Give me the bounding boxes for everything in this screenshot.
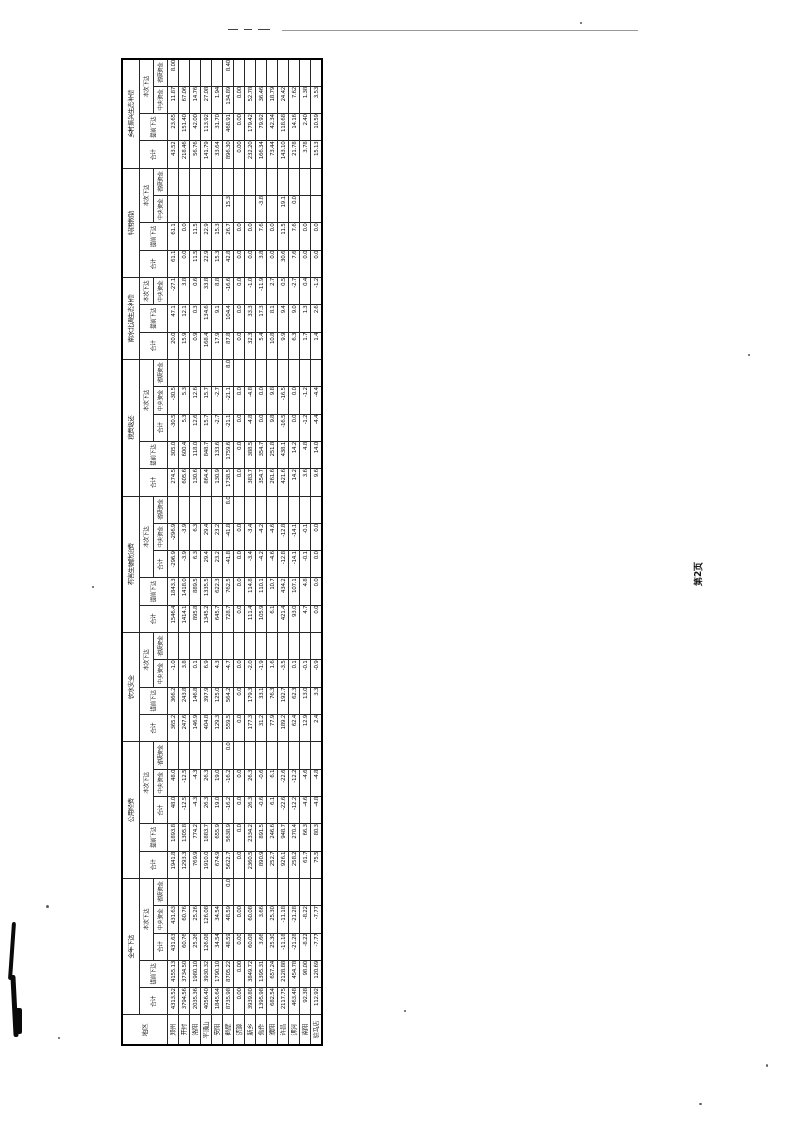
value-cell bbox=[267, 496, 278, 523]
page-number-label: 第2页 bbox=[692, 544, 706, 586]
sub-header: 中央资金 bbox=[154, 278, 168, 305]
value-cell: 151.40 bbox=[179, 114, 190, 141]
value-cell: 27.08 bbox=[201, 86, 212, 113]
sub-header: 本次下达 bbox=[140, 278, 154, 305]
value-cell bbox=[289, 742, 300, 769]
scan-speck bbox=[92, 586, 94, 588]
region-name: 郑州 bbox=[168, 1015, 179, 1045]
fiscal-allocation-table: 地区全年下达公用经费饮水安全有害生物防治费税费返还南水北调生态补偿特困救助乡村振… bbox=[121, 58, 323, 1046]
value-cell: -16.2 bbox=[223, 797, 234, 824]
value-cell: 66.3 bbox=[300, 824, 311, 851]
group-header: 饮水安全 bbox=[122, 633, 140, 742]
value-cell: -41.8 bbox=[223, 551, 234, 578]
value-cell bbox=[190, 633, 201, 660]
value-cell: 166.34 bbox=[256, 141, 267, 168]
value-cell: 3.66 bbox=[256, 933, 267, 960]
value-cell: 17.3 bbox=[256, 305, 267, 332]
value-cell: 3.6 bbox=[300, 469, 311, 496]
value-cell: 246.6 bbox=[267, 824, 278, 851]
value-cell: 9.4 bbox=[278, 305, 289, 332]
region-name: 驻马店 bbox=[311, 1015, 323, 1045]
value-cell: 0.0 bbox=[300, 223, 311, 250]
value-cell: 3.78 bbox=[300, 141, 311, 168]
scanned-page: { "page": { "label": "第2页" }, "table": {… bbox=[0, 0, 794, 1127]
value-cell: -22.6 bbox=[278, 769, 289, 796]
value-cell: 657.24 bbox=[267, 960, 278, 987]
value-cell: 1305.8 bbox=[179, 824, 190, 851]
value-cell: 47.1 bbox=[168, 305, 179, 332]
sub-header: 中央资金 bbox=[154, 387, 168, 414]
value-cell bbox=[179, 360, 190, 387]
value-cell: -1.2 bbox=[300, 414, 311, 441]
value-cell bbox=[256, 878, 267, 905]
value-cell: 79.92 bbox=[256, 114, 267, 141]
table-row: 驻马店112.92120.69-7.77-7.7775.580.3-4.8-4.… bbox=[311, 59, 323, 1045]
value-cell: 0.0 bbox=[234, 223, 245, 250]
value-cell: -296.9 bbox=[168, 551, 179, 578]
value-cell: -22.6 bbox=[278, 797, 289, 824]
value-cell: 243.8 bbox=[179, 687, 190, 714]
value-cell: 622.3 bbox=[212, 578, 223, 605]
value-cell: 134.6 bbox=[201, 305, 212, 332]
value-cell: 0.0 bbox=[234, 387, 245, 414]
value-cell: 559.5 bbox=[223, 715, 234, 742]
value-cell: 26.3 bbox=[245, 769, 256, 796]
value-cell: 10.8 bbox=[267, 332, 278, 359]
value-cell: 3.53 bbox=[311, 86, 323, 113]
value-cell bbox=[256, 360, 267, 387]
value-cell: -2.7 bbox=[212, 387, 223, 414]
value-cell bbox=[278, 742, 289, 769]
value-cell: 274.5 bbox=[168, 469, 179, 496]
value-cell: 26.3 bbox=[245, 797, 256, 824]
value-cell: 8705.22 bbox=[223, 960, 234, 987]
value-cell: 93.0 bbox=[289, 605, 300, 632]
value-cell bbox=[234, 633, 245, 660]
value-cell: 3.3 bbox=[311, 687, 323, 714]
value-cell: 366.2 bbox=[168, 687, 179, 714]
value-cell: -12.8 bbox=[278, 523, 289, 550]
value-cell bbox=[234, 360, 245, 387]
value-cell: 431.63 bbox=[168, 933, 179, 960]
value-cell: 19.0 bbox=[212, 769, 223, 796]
region-name: 焦作 bbox=[256, 1015, 267, 1045]
sub-header: 中央资金 bbox=[154, 86, 168, 113]
value-cell: 404.8 bbox=[201, 715, 212, 742]
value-cell: 3.8 bbox=[179, 660, 190, 687]
value-cell: -3.9 bbox=[179, 523, 190, 550]
value-cell: 1395.31 bbox=[256, 960, 267, 987]
value-cell: 0.3 bbox=[190, 305, 201, 332]
value-cell: 383.7 bbox=[245, 469, 256, 496]
value-cell bbox=[168, 196, 179, 223]
value-cell: 6.1 bbox=[267, 797, 278, 824]
group-header: 公用经费 bbox=[122, 742, 140, 879]
value-cell bbox=[245, 360, 256, 387]
value-cell: 0.0 bbox=[311, 523, 323, 550]
value-cell: 0.6 bbox=[190, 278, 201, 305]
value-cell: 25.30 bbox=[267, 906, 278, 933]
value-cell: 0.0 bbox=[179, 250, 190, 277]
sub-header: 合计 bbox=[154, 933, 168, 960]
value-cell: 9.6 bbox=[311, 469, 323, 496]
value-cell bbox=[245, 878, 256, 905]
value-cell bbox=[278, 633, 289, 660]
scan-speck bbox=[748, 354, 750, 356]
value-cell bbox=[179, 633, 190, 660]
value-cell: 92.38 bbox=[300, 988, 311, 1015]
value-cell: 22.9 bbox=[201, 250, 212, 277]
value-cell: 130.6 bbox=[190, 469, 201, 496]
value-cell: 61.7 bbox=[300, 851, 311, 878]
value-cell bbox=[201, 633, 212, 660]
value-cell: 674.9 bbox=[212, 851, 223, 878]
value-cell: 0.0 bbox=[234, 769, 245, 796]
value-cell bbox=[267, 59, 278, 86]
value-cell bbox=[289, 633, 300, 660]
value-cell: 3939.80 bbox=[245, 988, 256, 1015]
value-cell: 23.65 bbox=[168, 114, 179, 141]
value-cell: 0.0 bbox=[234, 715, 245, 742]
value-cell: 896.30 bbox=[223, 141, 234, 168]
value-cell: 0.0 bbox=[300, 250, 311, 277]
value-cell: 8.40 bbox=[223, 59, 234, 86]
value-cell bbox=[223, 633, 234, 660]
sub-header: 提前下达 bbox=[140, 687, 168, 714]
value-cell: 1941.8 bbox=[168, 851, 179, 878]
value-cell: -4.8 bbox=[245, 414, 256, 441]
value-cell: -14.1 bbox=[289, 551, 300, 578]
value-cell: 12.9 bbox=[300, 715, 311, 742]
value-cell: 126.08 bbox=[201, 906, 212, 933]
value-cell: -27.1 bbox=[168, 278, 179, 305]
region-name: 济源 bbox=[234, 1015, 245, 1045]
value-cell: -4.6 bbox=[300, 797, 311, 824]
value-cell: 7.6 bbox=[289, 223, 300, 250]
value-cell: 2.6 bbox=[311, 305, 323, 332]
region-name: 许昌 bbox=[278, 1015, 289, 1045]
value-cell: 0.0 bbox=[234, 414, 245, 441]
value-cell bbox=[267, 742, 278, 769]
value-cell: 31.70 bbox=[212, 114, 223, 141]
value-cell: 42.00 bbox=[190, 114, 201, 141]
sub-header: 提前下达 bbox=[140, 441, 168, 468]
value-cell: 388.5 bbox=[245, 441, 256, 468]
value-cell: 34.54 bbox=[212, 933, 223, 960]
value-cell: 1980.10 bbox=[190, 960, 201, 987]
value-cell: 0.0 bbox=[234, 523, 245, 550]
value-cell bbox=[245, 196, 256, 223]
value-cell: 118.68 bbox=[278, 114, 289, 141]
group-header: 税费返还 bbox=[122, 360, 140, 497]
value-cell: 24.42 bbox=[278, 86, 289, 113]
value-cell bbox=[212, 633, 223, 660]
value-cell bbox=[300, 878, 311, 905]
value-cell bbox=[245, 59, 256, 86]
table-row: 鹤壁8735.988705.2248.5948.590.05622.75638.… bbox=[223, 59, 234, 1045]
group-header: 乡村振兴生态补偿 bbox=[122, 59, 140, 168]
value-cell: -4.2 bbox=[256, 523, 267, 550]
value-cell: -11.18 bbox=[278, 933, 289, 960]
value-cell bbox=[201, 360, 212, 387]
value-cell: 2360.5 bbox=[245, 851, 256, 878]
value-cell bbox=[300, 742, 311, 769]
value-cell bbox=[190, 59, 201, 86]
value-cell: 73.44 bbox=[267, 141, 278, 168]
value-cell: -3.4 bbox=[245, 551, 256, 578]
sub-header: 合计 bbox=[140, 715, 168, 742]
table-row: 郑州4313.524155.13431.63431.631941.81893.8… bbox=[168, 59, 179, 1045]
value-cell: 9.9 bbox=[278, 332, 289, 359]
value-cell: 6.3 bbox=[190, 523, 201, 550]
table-row: 南阳92.3898.00-8.22-8.2261.766.3-4.6-4.612… bbox=[300, 59, 311, 1045]
value-cell: 14.76 bbox=[190, 86, 201, 113]
value-cell: 0.9 bbox=[190, 332, 201, 359]
value-cell: 0.0 bbox=[223, 742, 234, 769]
value-cell: 129.3 bbox=[212, 715, 223, 742]
value-cell bbox=[311, 496, 323, 523]
value-cell: 6.9 bbox=[201, 660, 212, 687]
value-cell: 0.0 bbox=[311, 223, 323, 250]
value-cell: 60.76 bbox=[179, 933, 190, 960]
value-cell: -4.8 bbox=[245, 387, 256, 414]
value-cell bbox=[234, 168, 245, 195]
value-cell: 179.3 bbox=[245, 687, 256, 714]
value-cell: 365.2 bbox=[168, 715, 179, 742]
value-cell: 22.9 bbox=[201, 223, 212, 250]
value-cell: 0.0 bbox=[179, 223, 190, 250]
value-cell: 30.6 bbox=[278, 250, 289, 277]
value-cell: 4.7 bbox=[300, 605, 311, 632]
sub-header: 省级资金 bbox=[154, 168, 168, 195]
region-name: 南阳 bbox=[300, 1015, 311, 1045]
value-cell: 133.6 bbox=[212, 441, 223, 468]
value-cell: 42.8 bbox=[223, 250, 234, 277]
value-cell bbox=[234, 59, 245, 86]
value-cell: 1893.8 bbox=[168, 824, 179, 851]
value-cell bbox=[256, 633, 267, 660]
sub-header: 本次下达 bbox=[140, 496, 154, 578]
value-cell: 0.0 bbox=[289, 196, 300, 223]
region-name: 新乡 bbox=[245, 1015, 256, 1045]
value-cell: 3.8 bbox=[179, 278, 190, 305]
value-cell bbox=[168, 742, 179, 769]
value-cell: -3.4 bbox=[245, 523, 256, 550]
sub-header: 中央资金 bbox=[154, 660, 168, 687]
value-cell: 728.7 bbox=[223, 605, 234, 632]
sub-header: 省级资金 bbox=[154, 496, 168, 523]
value-cell: 421.4 bbox=[278, 605, 289, 632]
value-cell: 1293.3 bbox=[179, 851, 190, 878]
value-cell: 192.7 bbox=[278, 687, 289, 714]
value-cell: -11.18 bbox=[278, 906, 289, 933]
value-cell: 438.1 bbox=[278, 441, 289, 468]
value-cell: 8.8 bbox=[212, 278, 223, 305]
value-cell: -4.6 bbox=[267, 523, 278, 550]
sub-header: 本次下达 bbox=[140, 360, 154, 442]
value-cell: 18.79 bbox=[267, 86, 278, 113]
value-cell bbox=[168, 633, 179, 660]
value-cell: -3.9 bbox=[179, 551, 190, 578]
scan-speck bbox=[699, 1103, 702, 1105]
value-cell: 434.2 bbox=[278, 578, 289, 605]
value-cell bbox=[234, 742, 245, 769]
value-cell: 4155.13 bbox=[168, 960, 179, 987]
value-cell bbox=[234, 496, 245, 523]
value-cell: -4.4 bbox=[311, 414, 323, 441]
value-cell: 655.9 bbox=[212, 824, 223, 851]
value-cell: 463.48 bbox=[289, 988, 300, 1015]
value-cell: 605.6 bbox=[179, 469, 190, 496]
value-cell: 2.7 bbox=[267, 278, 278, 305]
value-cell: 1.7 bbox=[300, 332, 311, 359]
value-cell bbox=[212, 59, 223, 86]
table-row: 开封3794.563734.5060.7660.761293.31305.8-1… bbox=[179, 59, 190, 1045]
value-cell bbox=[300, 360, 311, 387]
group-header: 全年下达 bbox=[122, 878, 140, 1015]
table-row: 洛阳2035.361980.1025.2625.26769.9774.2-4.3… bbox=[190, 59, 201, 1045]
value-cell: 114.8 bbox=[245, 578, 256, 605]
value-cell: 111.4 bbox=[245, 605, 256, 632]
value-cell: 43.52 bbox=[168, 141, 179, 168]
value-cell: 15.3 bbox=[212, 223, 223, 250]
value-cell bbox=[311, 168, 323, 195]
value-cell: 0.0 bbox=[289, 414, 300, 441]
value-cell: 1546.4 bbox=[168, 605, 179, 632]
value-cell: 889.5 bbox=[190, 578, 201, 605]
value-cell bbox=[168, 878, 179, 905]
value-cell: 2128.88 bbox=[278, 960, 289, 987]
value-cell: 12.1 bbox=[179, 305, 190, 332]
value-cell: -11.9 bbox=[256, 278, 267, 305]
scan-speck bbox=[58, 1037, 60, 1039]
value-cell bbox=[212, 168, 223, 195]
sub-header: 本次下达 bbox=[140, 168, 154, 223]
value-cell: -41.8 bbox=[223, 523, 234, 550]
value-cell bbox=[179, 59, 190, 86]
value-cell: 0.0 bbox=[256, 387, 267, 414]
sub-header: 合计 bbox=[154, 414, 168, 441]
value-cell: 8.0 bbox=[223, 496, 234, 523]
value-cell: -16.5 bbox=[278, 414, 289, 441]
value-cell: -16.5 bbox=[278, 387, 289, 414]
value-cell bbox=[201, 59, 212, 86]
value-cell: 468.91 bbox=[223, 114, 234, 141]
value-cell: 774.2 bbox=[190, 824, 201, 851]
value-cell: 19.1 bbox=[278, 196, 289, 223]
value-cell: 600.4 bbox=[179, 441, 190, 468]
value-cell: -16.2 bbox=[223, 769, 234, 796]
value-cell: 98.00 bbox=[300, 960, 311, 987]
value-cell: 19.0 bbox=[212, 797, 223, 824]
value-cell: -16.6 bbox=[223, 278, 234, 305]
value-cell: -4.8 bbox=[311, 769, 323, 796]
value-cell: 0.0 bbox=[234, 851, 245, 878]
value-cell: 218.46 bbox=[179, 141, 190, 168]
value-cell: -2.0 bbox=[245, 660, 256, 687]
value-cell: 6.1 bbox=[267, 769, 278, 796]
value-cell: 5622.7 bbox=[223, 851, 234, 878]
value-cell: 0.00 bbox=[234, 933, 245, 960]
value-cell: -8.22 bbox=[300, 933, 311, 960]
value-cell: 7.62 bbox=[289, 86, 300, 113]
value-cell: 0.0 bbox=[311, 250, 323, 277]
sub-header: 省级资金 bbox=[154, 360, 168, 387]
value-cell: 8735.98 bbox=[223, 988, 234, 1015]
value-cell: 769.9 bbox=[190, 851, 201, 878]
value-cell bbox=[289, 59, 300, 86]
value-cell: 29.4 bbox=[201, 551, 212, 578]
value-cell: 107.1 bbox=[289, 578, 300, 605]
value-cell: 1.38 bbox=[300, 86, 311, 113]
value-cell: 1845.64 bbox=[212, 988, 223, 1015]
value-cell: 848.7 bbox=[201, 441, 212, 468]
value-cell: 0.0 bbox=[234, 469, 245, 496]
value-cell bbox=[168, 496, 179, 523]
value-cell: 9.8 bbox=[267, 414, 278, 441]
value-cell: 0.0 bbox=[256, 414, 267, 441]
value-cell: 9.0 bbox=[289, 305, 300, 332]
value-cell: 948.7 bbox=[278, 824, 289, 851]
value-cell: 15.3 bbox=[223, 196, 234, 223]
value-cell: 0.0 bbox=[234, 824, 245, 851]
value-cell: 14.2 bbox=[289, 441, 300, 468]
value-cell: 126.08 bbox=[201, 933, 212, 960]
value-cell: 14.16 bbox=[289, 114, 300, 141]
sub-header: 省级资金 bbox=[154, 59, 168, 86]
sub-header: 提前下达 bbox=[140, 114, 168, 141]
value-cell bbox=[190, 878, 201, 905]
region-name: 开封 bbox=[179, 1015, 190, 1045]
scan-artifact-dash bbox=[258, 29, 270, 30]
value-cell: 252.7 bbox=[267, 851, 278, 878]
value-cell: 645.7 bbox=[212, 605, 223, 632]
value-cell: 2.40 bbox=[300, 114, 311, 141]
value-cell: 75.5 bbox=[311, 851, 323, 878]
value-cell: 62.3 bbox=[289, 687, 300, 714]
value-cell: 0.0 bbox=[267, 223, 278, 250]
value-cell: 26.3 bbox=[201, 797, 212, 824]
value-cell: 120.69 bbox=[311, 960, 323, 987]
value-cell bbox=[201, 168, 212, 195]
value-cell: 0.0 bbox=[245, 223, 256, 250]
value-cell: 0.00 bbox=[234, 141, 245, 168]
value-cell: -21.1 bbox=[223, 387, 234, 414]
value-cell: 1759.6 bbox=[223, 441, 234, 468]
value-cell bbox=[201, 196, 212, 223]
value-cell bbox=[245, 496, 256, 523]
value-cell: 33.64 bbox=[212, 141, 223, 168]
value-cell: 251.8 bbox=[267, 441, 278, 468]
value-cell: 2334.2 bbox=[245, 824, 256, 851]
value-cell: 67.06 bbox=[179, 86, 190, 113]
value-cell: 0.00 bbox=[234, 906, 245, 933]
sub-header: 省级资金 bbox=[154, 742, 168, 769]
value-cell: 48.59 bbox=[223, 933, 234, 960]
value-cell: 6.3 bbox=[190, 551, 201, 578]
value-cell: 31.2 bbox=[256, 715, 267, 742]
value-cell: 397.9 bbox=[201, 687, 212, 714]
value-cell: -1.0 bbox=[168, 660, 179, 687]
value-cell: 0.0 bbox=[234, 551, 245, 578]
value-cell: -30.5 bbox=[168, 387, 179, 414]
value-cell bbox=[300, 168, 311, 195]
value-cell: 1.94 bbox=[212, 86, 223, 113]
value-cell: 2035.36 bbox=[190, 988, 201, 1015]
sub-header: 合计 bbox=[140, 469, 168, 496]
rotated-table-container: 地区全年下达公用经费饮水安全有害生物防治费税费返还南水北调生态补偿特困救助乡村振… bbox=[121, 58, 303, 1046]
value-cell bbox=[234, 878, 245, 905]
